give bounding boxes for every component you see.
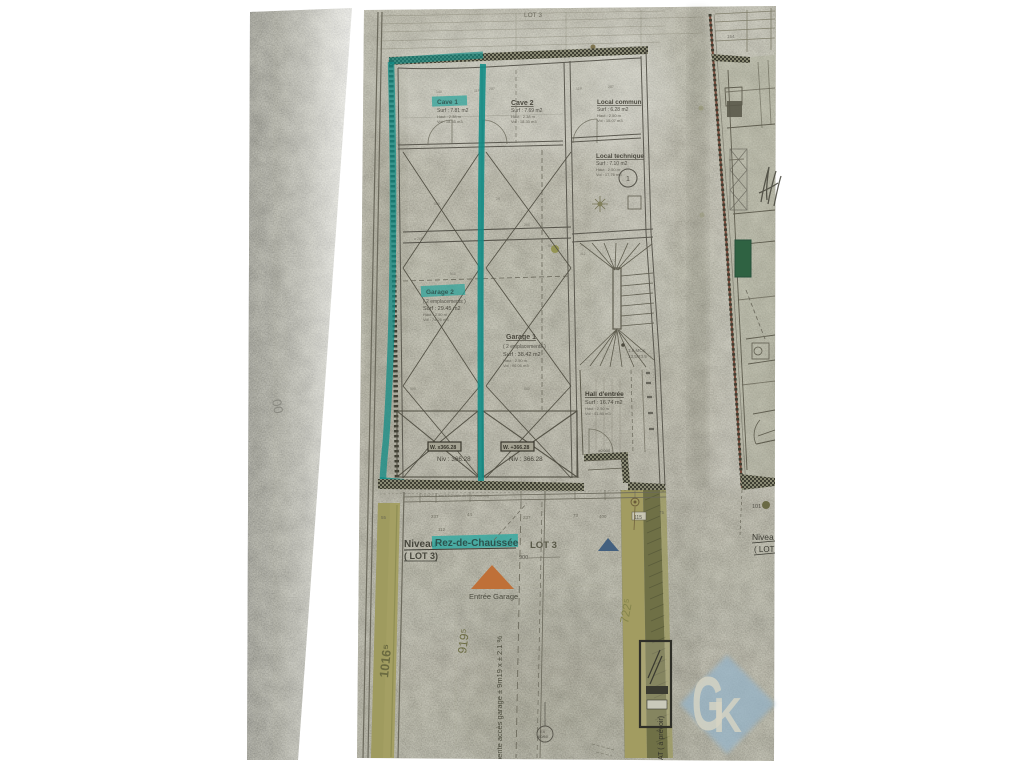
svg-text:Niveau: Niveau [404,539,437,550]
svg-text:60/60: 60/60 [538,734,549,739]
svg-text:Local commun: Local commun [597,99,642,106]
svg-text:( LOT: ( LOT [754,545,775,554]
svg-text:237: 237 [523,515,531,520]
svg-text:1: 1 [626,176,630,183]
svg-text:Cave 1: Cave 1 [437,99,458,106]
svg-text:Garage 2: Garage 2 [426,289,454,296]
svg-text:Vol : 17.76 m3: Vol : 17.76 m3 [596,172,622,177]
svg-text:Local technique: Local technique [596,153,644,160]
svg-text:W. x366.28: W. x366.28 [430,445,456,451]
svg-text:112: 112 [580,252,586,256]
svg-text:Niv : 366.28: Niv : 366.28 [437,456,471,463]
svg-text:Hall d'entrée: Hall d'entrée [585,391,624,398]
svg-text:AT ( à prévoir): AT ( à prévoir) [658,716,665,760]
svg-text:287: 287 [489,87,495,91]
svg-text:500: 500 [450,272,456,276]
svg-text:1.6 MCK: 1.6 MCK [628,348,646,353]
svg-text:44: 44 [467,512,473,517]
svg-text:( LOT 3): ( LOT 3) [404,551,438,561]
svg-text:400: 400 [599,514,607,519]
svg-text:75: 75 [659,510,665,515]
svg-text:140: 140 [436,90,442,94]
svg-text:73: 73 [573,513,579,518]
svg-text:pente accès garage ± 9m19 x ±: pente accès garage ± 9m19 x ± 2.1 % [495,635,504,762]
svg-text:112: 112 [438,527,446,532]
svg-text:Vol : 96.05 m3: Vol : 96.05 m3 [503,363,529,368]
svg-text:55: 55 [381,515,387,520]
svg-text:29: 29 [496,197,500,201]
svg-text:268: 268 [524,223,530,227]
svg-text:101: 101 [752,504,761,510]
svg-text:K: K [714,689,742,743]
svg-text:237: 237 [431,514,439,519]
svg-text:Garage 1: Garage 1 [506,334,536,341]
svg-text:Vol : 18.33 m3: Vol : 18.33 m3 [511,119,537,124]
svg-text:Vol : 18.55 m3: Vol : 18.55 m3 [437,119,463,124]
svg-text:00: 00 [269,398,286,415]
svg-text:Rez-de-Chaussée: Rez-de-Chaussée [435,538,519,549]
svg-text:Vol : 41.85 m3: Vol : 41.85 m3 [585,411,611,416]
svg-text:500: 500 [524,387,530,391]
svg-text:Nivea: Nivea [752,532,774,542]
svg-text:500: 500 [410,387,416,391]
svg-text:11P: 11P [576,87,583,91]
svg-text:287: 287 [608,85,614,89]
svg-text:( 2 emplacements ): ( 2 emplacements ) [423,299,466,305]
svg-text:Cave 2: Cave 2 [511,100,534,107]
svg-text:LOT 3: LOT 3 [524,12,542,19]
svg-text:±0.000: ±0.000 [598,448,611,453]
svg-text:( 2 emplacements ): ( 2 emplacements ) [503,344,546,350]
svg-text:Vol : 15.07 m3: Vol : 15.07 m3 [597,118,623,123]
svg-text:154: 154 [727,34,735,39]
svg-text:Niv : 366.28: Niv : 366.28 [509,456,543,463]
svg-text:LOT 3: LOT 3 [530,540,557,551]
svg-text:Vol : 74.26 m3: Vol : 74.26 m3 [423,317,449,322]
svg-text:Entrée Garage: Entrée Garage [469,592,518,601]
svg-text:115: 115 [634,515,642,521]
svg-text:900: 900 [519,555,528,561]
svg-text:W. +366.28: W. +366.28 [503,445,530,451]
svg-text:13.5/23.5: 13.5/23.5 [628,354,647,359]
